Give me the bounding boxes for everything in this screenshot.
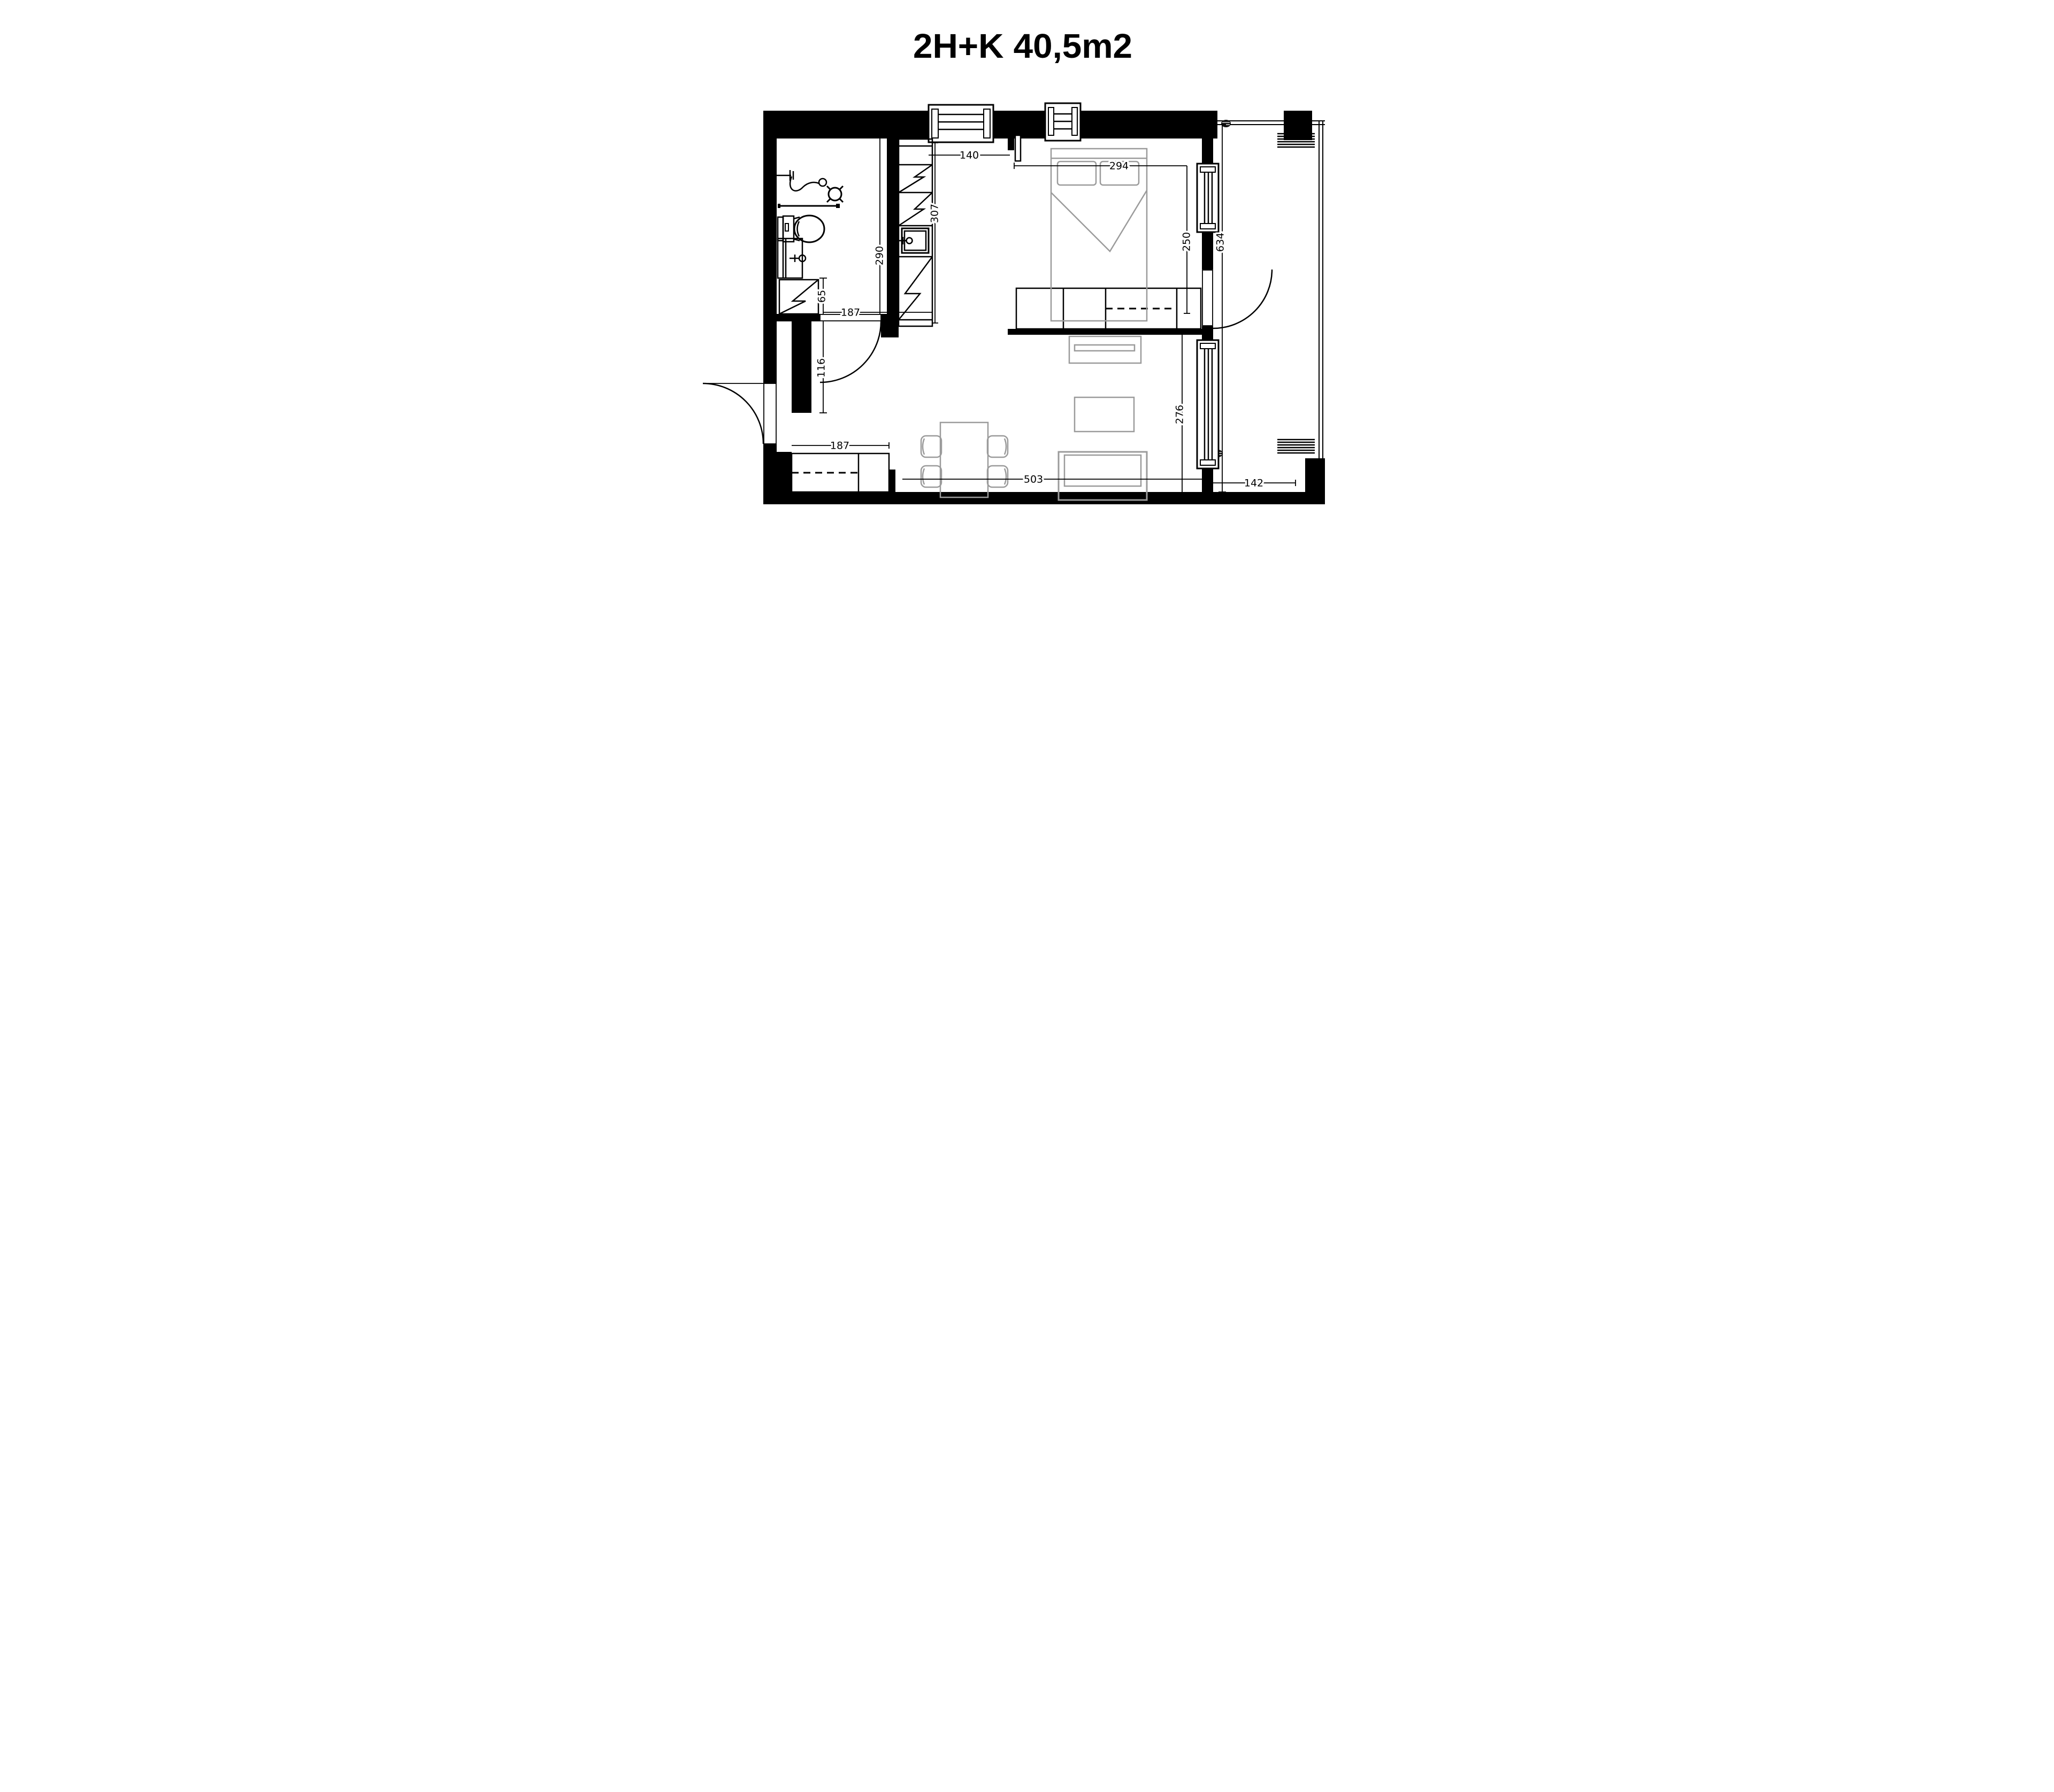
bedroom-wardrobe xyxy=(1016,288,1201,329)
dim-kitchen-run: 307 xyxy=(929,143,941,323)
bathroom-bottom-wall-right xyxy=(881,314,899,337)
dim-label-116: 116 xyxy=(816,358,827,378)
bedroom-balcony-window xyxy=(1197,164,1218,232)
hall-closet xyxy=(792,453,889,492)
tv-stand xyxy=(1069,336,1141,363)
dim-label-187a: 187 xyxy=(841,307,860,319)
closet-end-pier xyxy=(889,470,895,492)
appliance-zigzag-2 xyxy=(899,193,932,226)
hall-shaft-pier xyxy=(792,320,811,413)
left-wall-upper xyxy=(763,139,777,383)
balcony xyxy=(1213,120,1325,492)
floor-plan-page: 2H+K 40,5m2 xyxy=(685,0,1369,597)
dim-label-276: 276 xyxy=(1174,405,1186,424)
dining-chair xyxy=(987,466,1008,487)
dim-balcony-width: 142 xyxy=(1213,478,1296,489)
blanket-fold xyxy=(1051,190,1147,251)
dim-label-503: 503 xyxy=(1024,474,1043,486)
dining-chair xyxy=(921,436,941,457)
dim-kitchen-window: 140 xyxy=(929,150,1010,161)
pillow-left xyxy=(1057,161,1096,185)
balcony-corner-block-bottom xyxy=(1305,458,1325,496)
dim-label-142: 142 xyxy=(1244,478,1263,489)
bedroom-living-wall xyxy=(1008,329,1213,335)
balcony-door xyxy=(1202,270,1272,328)
plan-title: 2H+K 40,5m2 xyxy=(913,27,1132,65)
dim-entry-wall: 116 xyxy=(816,321,827,413)
dining-set xyxy=(921,422,1008,497)
dim-label-65: 65 xyxy=(816,290,828,303)
ventilation-grille-top xyxy=(1277,134,1315,147)
bathroom-kitchen-wall xyxy=(887,139,899,321)
shower-rail xyxy=(778,204,840,208)
dim-bathroom-depth: 290 xyxy=(874,131,886,314)
dining-table xyxy=(940,422,988,497)
dim-label-140: 140 xyxy=(960,150,979,161)
kitchen-window xyxy=(929,105,993,142)
top-wall-left xyxy=(763,111,932,139)
dim-label-294: 294 xyxy=(1109,160,1129,172)
entrance-door xyxy=(703,383,776,444)
dim-hall-closet: 187 xyxy=(792,440,889,452)
top-wall-right xyxy=(1079,111,1217,139)
bathroom-door xyxy=(820,314,881,382)
washbasin-cabinet xyxy=(778,239,806,278)
kitchen-sink xyxy=(896,228,929,253)
appliance-zigzag-1 xyxy=(899,165,932,193)
appliance-zigzag-3 xyxy=(899,257,932,320)
bedroom-partition-stub xyxy=(1008,139,1014,150)
shower-mixer-icon xyxy=(776,170,843,202)
coffee-table xyxy=(1075,397,1134,432)
dim-living-depth: 276 xyxy=(1174,335,1186,492)
right-wall-seg2 xyxy=(1202,230,1213,270)
shower-enclosure xyxy=(779,280,818,314)
dining-chair xyxy=(987,436,1008,457)
right-wall-seg1 xyxy=(1202,139,1213,166)
bottom-wall xyxy=(763,492,1325,504)
bathroom xyxy=(776,170,843,314)
dim-label-634: 634 xyxy=(1215,233,1227,252)
top-wall-mid xyxy=(990,111,1047,139)
dim-label-250: 250 xyxy=(1181,232,1193,251)
dim-living-width: 503 xyxy=(902,474,1202,486)
floor-plan-drawing: 2H+K 40,5m2 xyxy=(685,0,1369,597)
dim-label-307: 307 xyxy=(929,204,941,223)
bedroom-window xyxy=(1045,103,1080,141)
kitchen-cabinet-run xyxy=(896,139,932,326)
dining-chair xyxy=(921,466,941,487)
dim-label-187b: 187 xyxy=(830,440,849,452)
sliding-door-leaf xyxy=(1015,135,1021,161)
living-balcony-window xyxy=(1197,340,1218,468)
ventilation-grille-bottom xyxy=(1277,440,1315,453)
dim-label-290: 290 xyxy=(874,246,886,265)
